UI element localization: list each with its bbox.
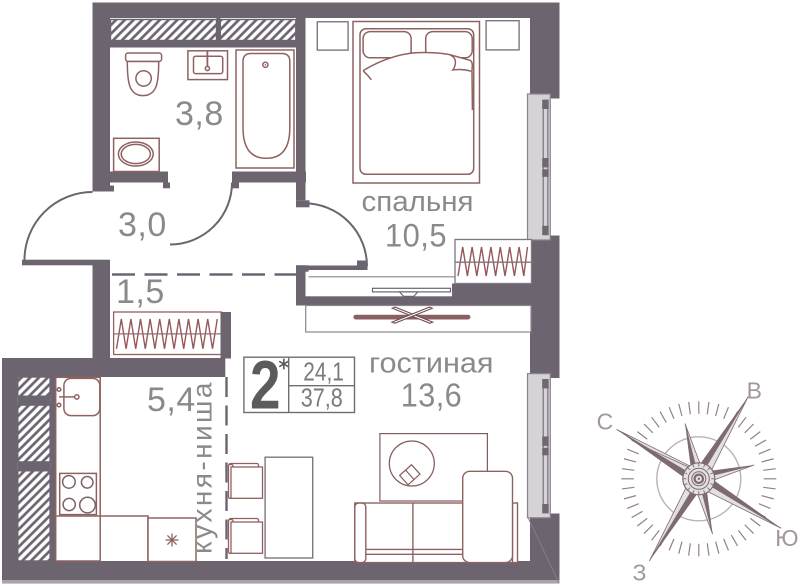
svg-text:спальня: спальня — [362, 186, 474, 218]
svg-text:1,5: 1,5 — [116, 273, 165, 311]
svg-text:гостиная: гостиная — [369, 348, 494, 380]
svg-text:2: 2 — [250, 347, 281, 424]
svg-text:З: З — [632, 560, 646, 584]
svg-text:кухня-ниша: кухня-ниша — [187, 380, 218, 554]
svg-text:24,1: 24,1 — [303, 359, 344, 387]
svg-text:10,5: 10,5 — [385, 218, 447, 254]
svg-text:3,0: 3,0 — [118, 206, 167, 244]
svg-text:Ю: Ю — [775, 525, 798, 551]
svg-text:В: В — [747, 378, 762, 404]
svg-text:13,6: 13,6 — [401, 377, 463, 414]
svg-text:37,8: 37,8 — [301, 385, 343, 413]
svg-text:С: С — [597, 408, 614, 434]
svg-text:3,8: 3,8 — [175, 95, 224, 133]
